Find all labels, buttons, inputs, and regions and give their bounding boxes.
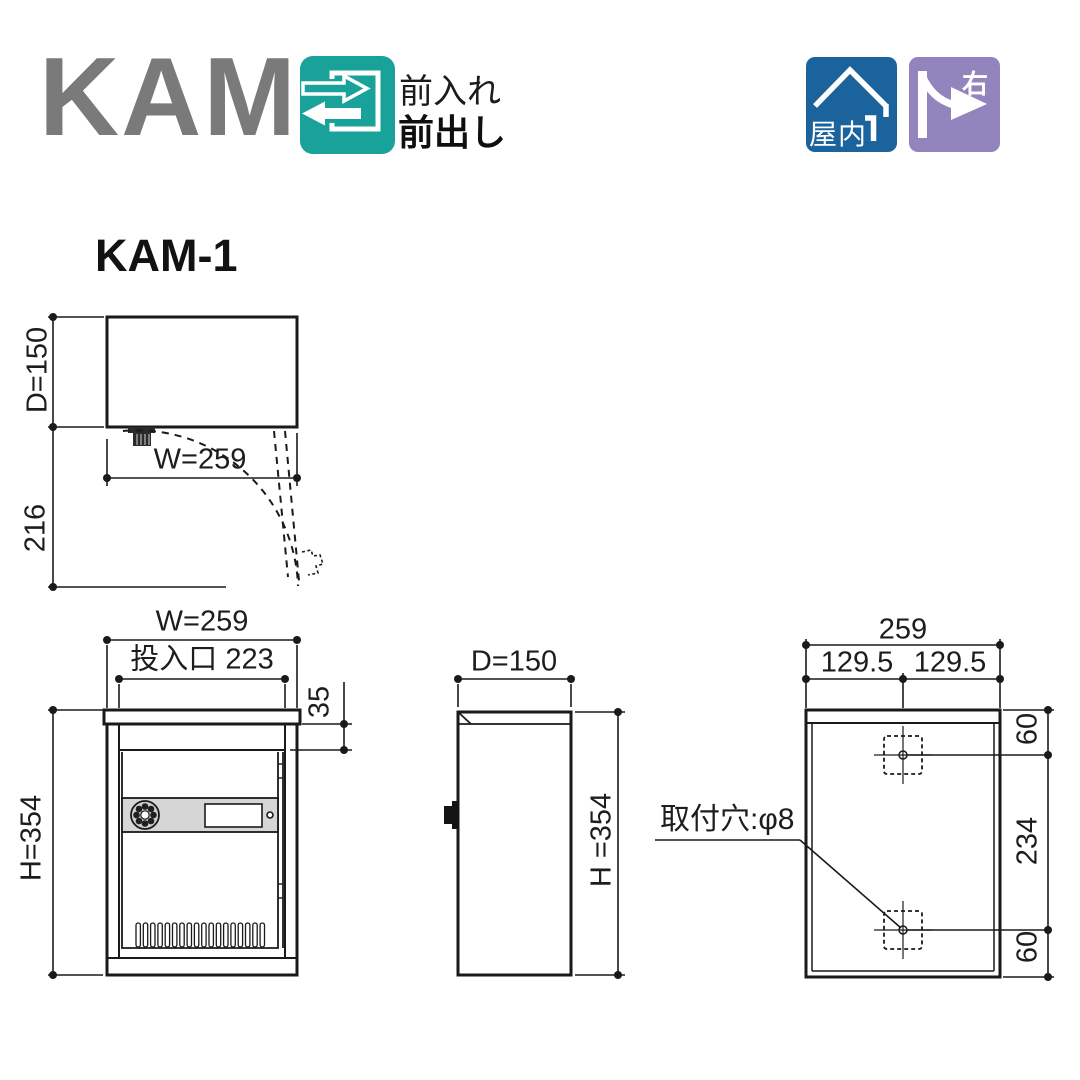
top-view-width-dim: W=259 bbox=[154, 446, 247, 475]
nameplate-window bbox=[205, 804, 262, 827]
screw-dot bbox=[267, 812, 273, 818]
open-door-knob bbox=[302, 550, 323, 575]
front-view-height-dim: H=354 bbox=[18, 795, 47, 881]
front-view-slot-offset-dim: 35 bbox=[306, 686, 335, 718]
top-view-depth-dim: D=150 bbox=[24, 327, 53, 413]
back-view-half-left-dim: 129.5 bbox=[821, 649, 894, 678]
back-view-dim-lines bbox=[806, 639, 1054, 977]
back-view-half-right-dim: 129.5 bbox=[914, 649, 987, 678]
top-view-clearance-dim: 216 bbox=[22, 504, 51, 552]
body-side bbox=[458, 712, 571, 975]
back-view-bottom-offset-dim: 60 bbox=[1014, 931, 1043, 963]
side-view-depth-dim: D=150 bbox=[471, 648, 557, 677]
side-view-height-dim: H =354 bbox=[588, 793, 617, 887]
vent-slots bbox=[136, 923, 265, 947]
dial-lock bbox=[131, 801, 159, 829]
mounting-hole-note: 取付穴:φ8 bbox=[660, 805, 794, 835]
hole-note-leader bbox=[655, 840, 901, 928]
catalog-page: KAM 前入れ 前出し 屋内 右 KAM-1 bbox=[0, 0, 1080, 1080]
front-view-slot-dim: 投入口 223 bbox=[130, 646, 273, 675]
door-front bbox=[122, 752, 278, 948]
open-door-inner bbox=[274, 431, 288, 577]
back-view-top-offset-dim: 60 bbox=[1014, 713, 1043, 745]
back-view-pitch-dim: 234 bbox=[1014, 817, 1043, 865]
front-view-width-dim: W=259 bbox=[156, 608, 249, 637]
mailbox-body-top bbox=[107, 317, 297, 427]
lid-front bbox=[104, 710, 300, 724]
dial-knob-side-view bbox=[444, 801, 459, 829]
back-view-width-dim: 259 bbox=[879, 616, 927, 645]
technical-drawing bbox=[0, 0, 1080, 1080]
